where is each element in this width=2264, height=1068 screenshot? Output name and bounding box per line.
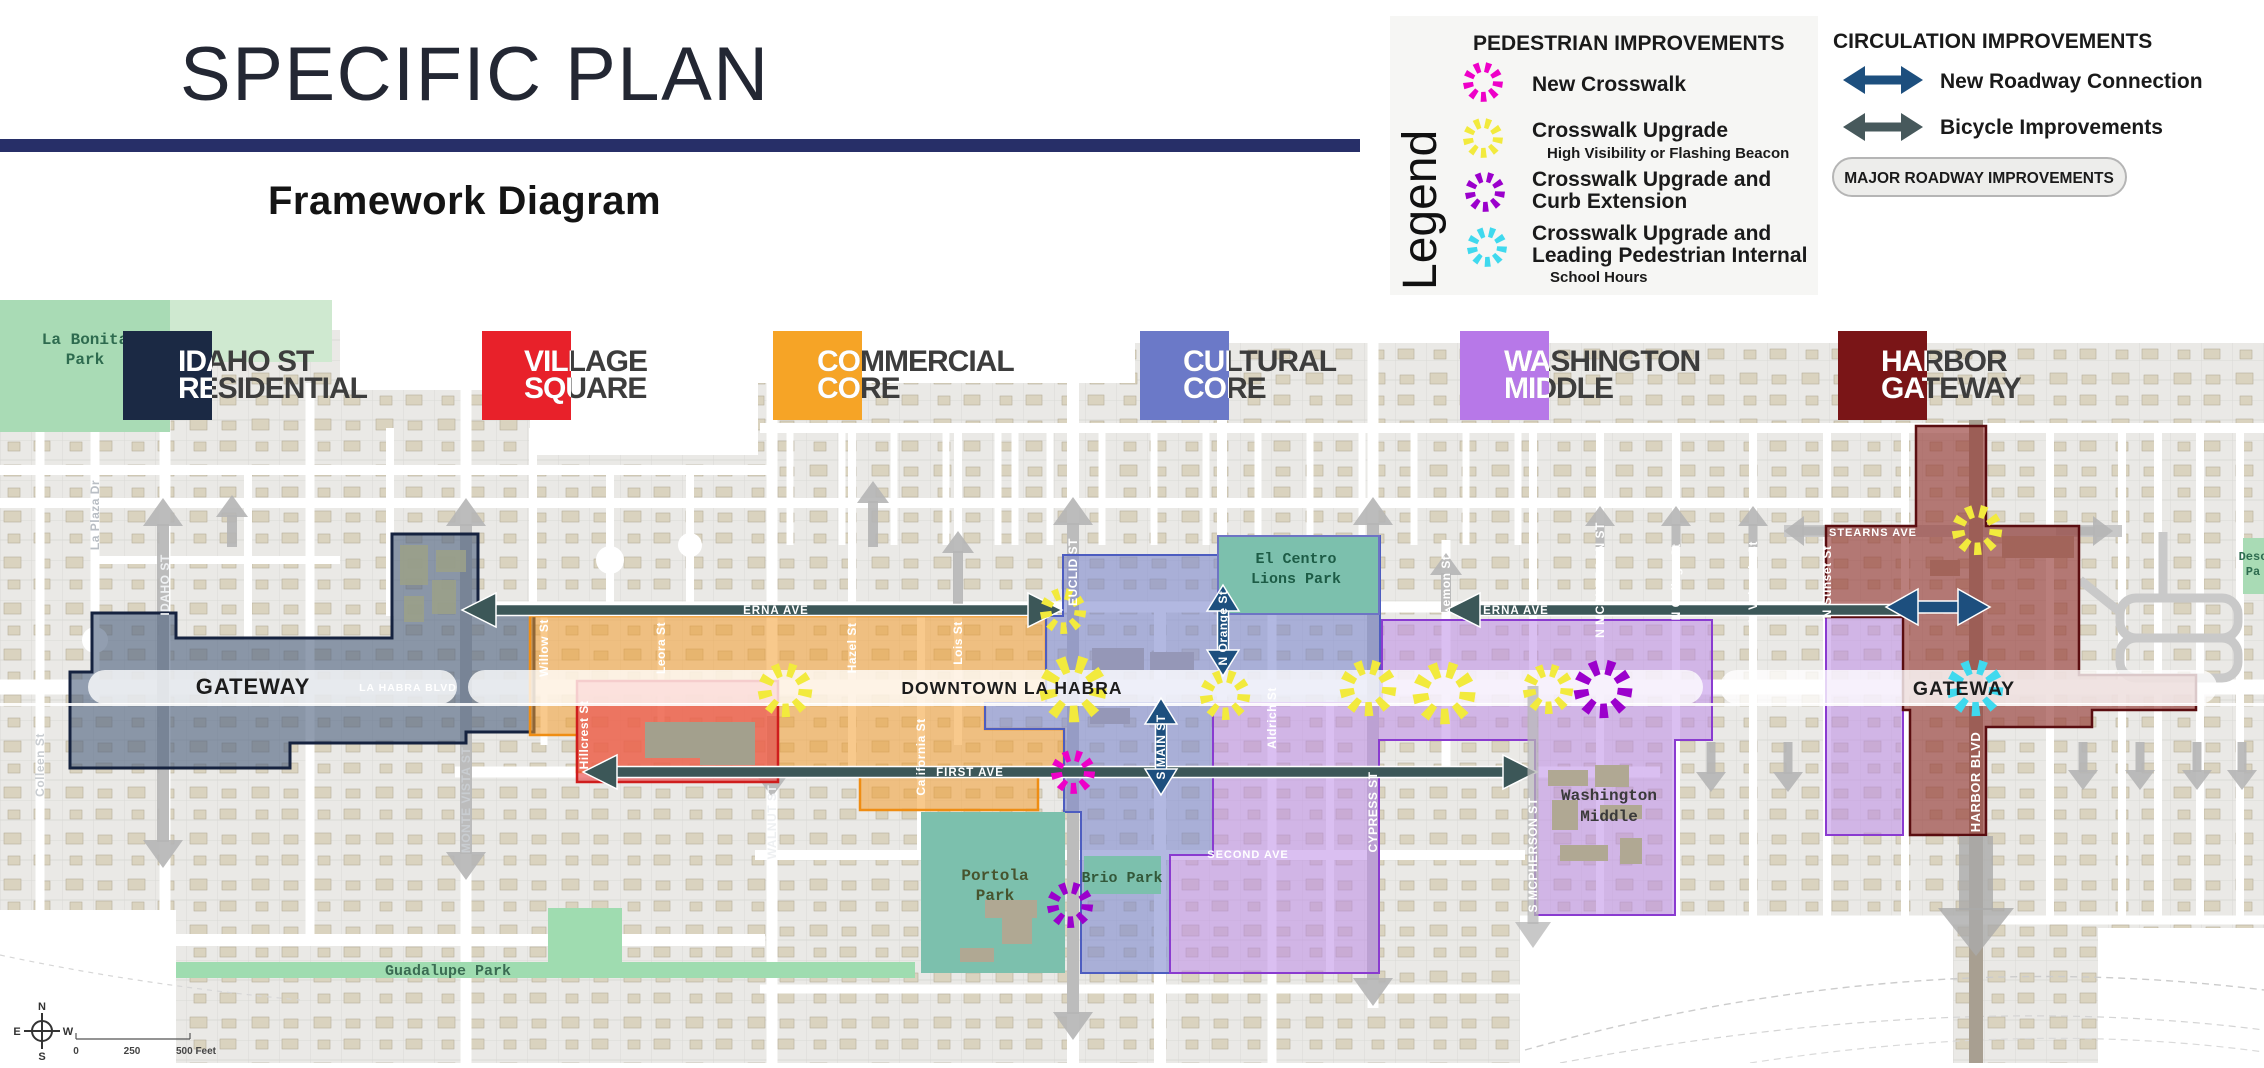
svg-text:N Sunset St: N Sunset St [1820, 546, 1834, 619]
svg-text:N College St: N College St [1669, 544, 1683, 621]
svg-text:School Hours: School Hours [1550, 269, 1648, 286]
svg-text:New Crosswalk: New Crosswalk [1532, 73, 1686, 96]
svg-text:HARBOR BLVD: HARBOR BLVD [1968, 732, 1983, 833]
svg-text:Curb Extension: Curb Extension [1532, 190, 1687, 213]
svg-text:Willow St: Willow St [537, 619, 551, 677]
svg-text:Lions Park: Lions Park [1251, 571, 1341, 588]
svg-text:La Bonita: La Bonita [42, 331, 129, 349]
svg-text:Middle: Middle [1580, 808, 1638, 826]
svg-text:PEDESTRIAN IMPROVEMENTS: PEDESTRIAN IMPROVEMENTS [1473, 32, 1785, 55]
svg-text:Crosswalk Upgrade and: Crosswalk Upgrade and [1532, 222, 1771, 245]
svg-text:N Valencia St: N Valencia St [1746, 541, 1760, 623]
svg-text:Crosswalk Upgrade and: Crosswalk Upgrade and [1532, 168, 1771, 191]
svg-text:DOWNTOWN LA HABRA: DOWNTOWN LA HABRA [901, 678, 1122, 698]
svg-text:Aldrich St: Aldrich St [1265, 687, 1279, 749]
svg-text:MONTE VISTA ST: MONTE VISTA ST [459, 747, 473, 854]
svg-text:Hillcrest St: Hillcrest St [577, 701, 591, 770]
svg-text:Portola: Portola [961, 867, 1029, 885]
svg-text:Bicycle Improvements: Bicycle Improvements [1940, 116, 2163, 139]
svg-text:High Visibility or Flashing Be: High Visibility or Flashing Beacon [1547, 145, 1789, 162]
svg-text:Colleen St: Colleen St [33, 733, 47, 797]
svg-text:500 Feet: 500 Feet [176, 1046, 217, 1057]
svg-text:Desc: Desc [2239, 550, 2264, 564]
svg-text:Lemon St: Lemon St [1439, 556, 1453, 615]
svg-text:S MCPHERSON ST: S MCPHERSON ST [1526, 797, 1540, 912]
svg-text:N: N [38, 1001, 46, 1013]
svg-text:Legend: Legend [1394, 130, 1447, 290]
svg-text:El Centro: El Centro [1255, 551, 1336, 568]
svg-text:LA HABRA BLVD: LA HABRA BLVD [359, 682, 457, 694]
svg-text:S MAIN ST: S MAIN ST [1154, 714, 1168, 779]
svg-text:Washington: Washington [1561, 787, 1657, 805]
svg-text:MAJOR ROADWAY IMPROVEMENTS: MAJOR ROADWAY IMPROVEMENTS [1844, 170, 2114, 187]
svg-text:SECOND AVE: SECOND AVE [1207, 849, 1289, 861]
svg-text:0: 0 [73, 1046, 79, 1057]
svg-text:Leora St: Leora St [654, 622, 668, 674]
svg-text:Guadalupe Park: Guadalupe Park [385, 963, 511, 980]
svg-text:Leading Pedestrian Internal: Leading Pedestrian Internal [1532, 244, 1807, 267]
svg-text:IDAHO ST: IDAHO ST [158, 554, 172, 616]
svg-text:Crosswalk Upgrade: Crosswalk Upgrade [1532, 119, 1728, 142]
svg-text:CYPRESS ST: CYPRESS ST [1366, 771, 1380, 852]
svg-text:La Plaza Dr: La Plaza Dr [88, 480, 102, 550]
svg-text:GATEWAY: GATEWAY [1913, 678, 2015, 700]
svg-text:N MCPHERSON ST: N MCPHERSON ST [1593, 522, 1607, 638]
svg-text:Hazel St: Hazel St [845, 623, 859, 674]
svg-text:Framework Diagram: Framework Diagram [268, 179, 661, 223]
svg-text:S: S [38, 1051, 45, 1063]
svg-text:EUCLID ST: EUCLID ST [1066, 538, 1080, 606]
svg-text:California St: California St [914, 718, 928, 795]
svg-text:GATEWAY: GATEWAY [196, 674, 311, 699]
svg-text:E: E [13, 1026, 20, 1038]
svg-text:CIRCULATION IMPROVEMENTS: CIRCULATION IMPROVEMENTS [1833, 30, 2152, 53]
svg-text:New Roadway Connection: New Roadway Connection [1940, 70, 2203, 93]
svg-text:W: W [63, 1026, 74, 1038]
svg-text:Lois St: Lois St [951, 621, 965, 665]
svg-text:Brio Park: Brio Park [1081, 870, 1162, 887]
svg-text:ERNA AVE: ERNA AVE [743, 605, 809, 617]
svg-text:N Orange St: N Orange St [1216, 591, 1230, 666]
svg-text:SPECIFIC PLAN: SPECIFIC PLAN [180, 32, 770, 117]
svg-text:Park: Park [66, 351, 105, 369]
svg-text:WALNUT ST: WALNUT ST [765, 785, 779, 860]
svg-text:Park: Park [976, 887, 1015, 905]
svg-text:250: 250 [124, 1046, 141, 1057]
svg-text:STEARNS AVE: STEARNS AVE [1829, 527, 1917, 539]
svg-text:Pa: Pa [2246, 565, 2260, 579]
svg-text:ERNA AVE: ERNA AVE [1483, 605, 1549, 617]
svg-text:FIRST AVE: FIRST AVE [936, 767, 1004, 779]
